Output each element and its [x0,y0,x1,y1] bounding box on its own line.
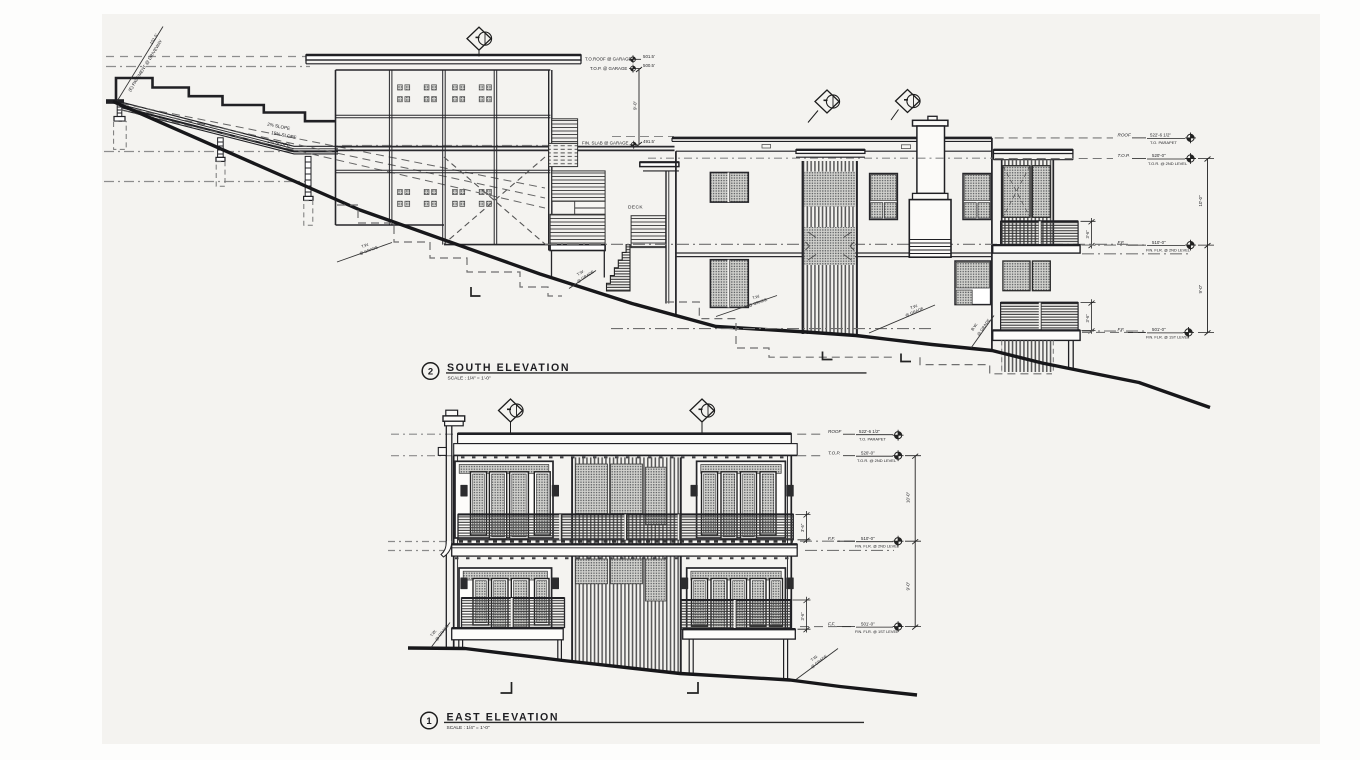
svg-text:9'-0": 9'-0" [1198,284,1203,293]
svg-text:T.O.P.: T.O.P. [828,450,841,455]
svg-text:T.O.P. @ GARAGE: T.O.P. @ GARAGE [590,66,627,71]
svg-text:EAST ELEVATION: EAST ELEVATION [447,711,560,723]
svg-text:501'-0": 501'-0" [1152,327,1166,332]
svg-text:F.F.: F.F. [1118,240,1125,245]
svg-text:510'-0": 510'-0" [1152,240,1166,245]
svg-text:SOUTH ELEVATION: SOUTH ELEVATION [447,362,570,374]
svg-text:T.O.P.: T.O.P. [1118,153,1131,158]
svg-text:DECK: DECK [628,205,643,211]
svg-text:F.F.: F.F. [828,621,835,626]
svg-text:FIN. FLR. @ 2ND LEVEL: FIN. FLR. @ 2ND LEVEL [855,544,900,549]
svg-text:520'-0": 520'-0" [861,450,875,455]
svg-text:T.O.R. @ 2ND LEVEL: T.O.R. @ 2ND LEVEL [1148,161,1188,166]
svg-text:SCALE : 1/4" = 1'-0": SCALE : 1/4" = 1'-0" [447,725,490,731]
svg-text:T.O. PARAPET: T.O. PARAPET [859,437,886,442]
svg-text:3'-6": 3'-6" [1085,314,1090,323]
svg-text:500.5': 500.5' [643,63,655,68]
svg-text:SCALE : 1/4" = 1'-0": SCALE : 1/4" = 1'-0" [448,376,491,382]
svg-text:510'-0": 510'-0" [861,536,875,541]
svg-text:501.5': 501.5' [643,54,655,59]
svg-text:10'-0": 10'-0" [1198,195,1203,207]
svg-text:10'-0": 10'-0" [906,491,911,503]
svg-text:T.O.ROOF @ GARAGE: T.O.ROOF @ GARAGE [585,57,631,62]
svg-text:1: 1 [426,716,432,727]
svg-text:9'-0": 9'-0" [906,581,911,590]
svg-text:522'-6 1/2": 522'-6 1/2" [1150,133,1171,138]
svg-text:9'-0": 9'-0" [633,100,638,110]
svg-text:F.F.: F.F. [828,536,835,541]
svg-text:522'-6 1/2": 522'-6 1/2" [859,429,880,434]
svg-text:ROOF: ROOF [1118,133,1132,138]
svg-text:520'-0": 520'-0" [1152,153,1166,158]
svg-text:FIN. FLR. @ 2ND LEVEL: FIN. FLR. @ 2ND LEVEL [1146,247,1191,252]
svg-text:501'-0": 501'-0" [861,621,875,626]
svg-text:T.O.R. @ 2ND LEVEL: T.O.R. @ 2ND LEVEL [857,458,897,463]
svg-text:T.O. PARAPET: T.O. PARAPET [1150,140,1177,145]
svg-text:FIN. SLAB @ GARAGE: FIN. SLAB @ GARAGE [582,140,628,145]
svg-text:ROOF: ROOF [828,429,842,434]
svg-text:3'-6": 3'-6" [800,523,805,532]
svg-text:2: 2 [428,366,433,377]
svg-text:491.5': 491.5' [643,139,655,144]
svg-text:FIN. FLR. @ 1ST LEVEL: FIN. FLR. @ 1ST LEVEL [1146,335,1190,340]
svg-text:FIN. FLR. @ 1ST LEVEL: FIN. FLR. @ 1ST LEVEL [855,629,899,634]
svg-text:3'-6": 3'-6" [800,612,805,621]
svg-text:3'-6": 3'-6" [1085,230,1090,239]
